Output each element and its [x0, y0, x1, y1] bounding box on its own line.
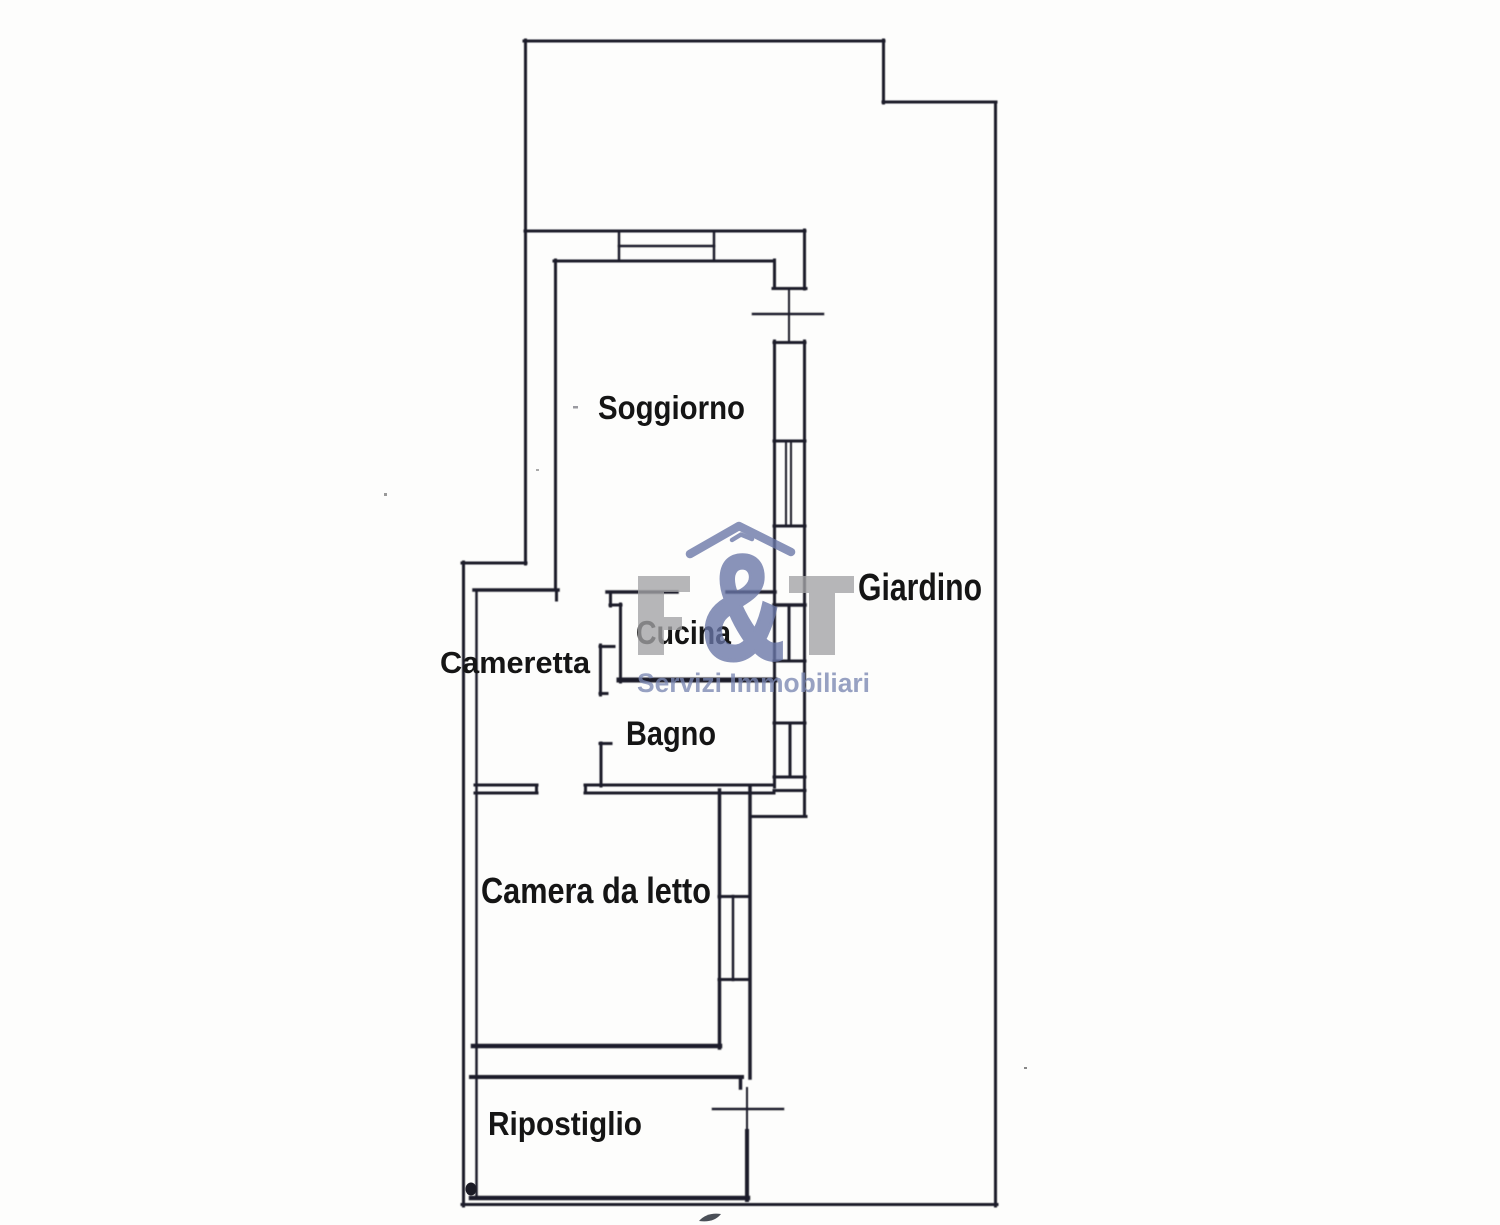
svg-text:Servizi Immobiliari: Servizi Immobiliari	[637, 668, 870, 698]
svg-text:Cameretta: Cameretta	[440, 645, 591, 680]
svg-text:Ripostiglio: Ripostiglio	[488, 1105, 642, 1142]
svg-text:Camera da letto: Camera da letto	[481, 870, 711, 911]
svg-text:&: &	[701, 523, 785, 691]
svg-text:Bagno: Bagno	[626, 715, 716, 753]
svg-text:Giardino: Giardino	[858, 567, 982, 609]
svg-text:Soggiorno: Soggiorno	[598, 389, 745, 426]
